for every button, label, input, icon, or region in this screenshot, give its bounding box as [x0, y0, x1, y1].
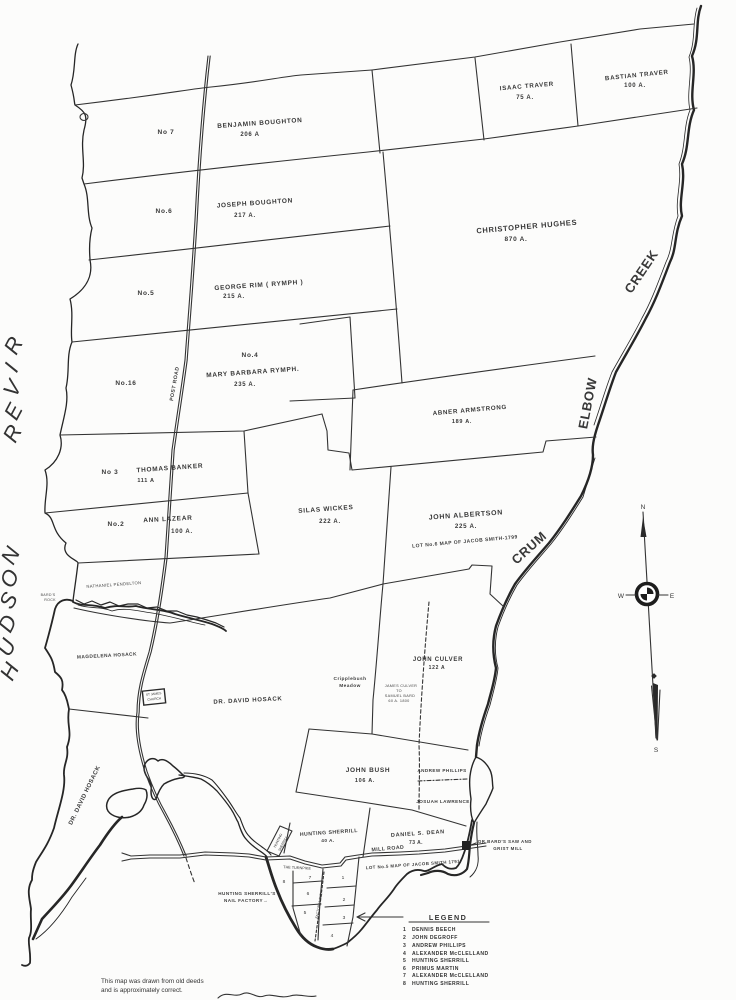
svg-text:2: 2 — [403, 935, 406, 941]
svg-text:7: 7 — [309, 875, 312, 881]
svg-text:7: 7 — [403, 973, 406, 979]
svg-text:ALEXANDER McCLELLAND: ALEXANDER McCLELLAND — [412, 951, 489, 957]
svg-text:No.4: No.4 — [242, 352, 259, 359]
svg-text:Cripplebush: Cripplebush — [334, 676, 367, 682]
svg-text:222 A.: 222 A. — [319, 519, 341, 525]
svg-text:ANDREW PHILLIPS: ANDREW PHILLIPS — [412, 943, 466, 949]
svg-text:DENNIS BEECH: DENNIS BEECH — [412, 927, 456, 933]
svg-text:4: 4 — [331, 933, 334, 939]
svg-text:3: 3 — [343, 915, 346, 921]
svg-text:W: W — [618, 593, 625, 600]
svg-text:No.2: No.2 — [108, 521, 125, 528]
svg-text:No.5: No.5 — [138, 290, 155, 297]
svg-text:870 A.: 870 A. — [504, 236, 527, 243]
svg-text:1: 1 — [342, 875, 345, 881]
svg-text:PRIMUS MARTIN: PRIMUS MARTIN — [412, 966, 459, 972]
svg-text:No.6: No.6 — [156, 208, 173, 215]
svg-text:JOHN DEGROFF: JOHN DEGROFF — [412, 935, 458, 941]
svg-text:Meadow: Meadow — [339, 683, 361, 689]
svg-text:75 A.: 75 A. — [516, 95, 534, 101]
svg-text:1: 1 — [403, 927, 406, 933]
svg-text:5: 5 — [403, 958, 406, 964]
svg-text:2: 2 — [343, 897, 346, 903]
svg-text:S: S — [654, 747, 659, 754]
svg-text:HUNTING SHERRILL'S: HUNTING SHERRILL'S — [218, 891, 275, 896]
svg-text:BARD'S: BARD'S — [41, 593, 56, 597]
svg-text:GRIST MILL: GRIST MILL — [493, 846, 522, 851]
svg-text:225 A.: 225 A. — [455, 523, 477, 530]
svg-text:No.16: No.16 — [115, 380, 136, 387]
svg-text:SAMUEL BARD: SAMUEL BARD — [385, 694, 415, 698]
svg-text:N: N — [641, 504, 646, 511]
svg-text:217 A.: 217 A. — [234, 213, 256, 219]
svg-text:HUNTING SHERRILL: HUNTING SHERRILL — [412, 958, 469, 964]
svg-text:235 A.: 235 A. — [234, 382, 256, 388]
svg-text:JOHN CULVER: JOHN CULVER — [413, 657, 463, 663]
svg-text:E: E — [670, 593, 675, 600]
svg-text:8: 8 — [403, 981, 406, 987]
svg-text:and is approximately correct.: and is approximately correct. — [101, 987, 183, 994]
svg-text:100 A.: 100 A. — [624, 83, 646, 89]
svg-text:6: 6 — [403, 966, 406, 972]
svg-text:DR BARD'S SAW AND: DR BARD'S SAW AND — [478, 839, 532, 844]
svg-text:73 A.: 73 A. — [409, 840, 423, 846]
svg-text:5: 5 — [304, 910, 307, 916]
svg-text:215 A.: 215 A. — [223, 294, 245, 300]
svg-text:122 A: 122 A — [429, 665, 446, 671]
svg-text:ALEXANDER McCLELLAND: ALEXANDER McCLELLAND — [412, 973, 489, 979]
svg-text:HUNTING SHERRILL: HUNTING SHERRILL — [412, 981, 469, 987]
svg-text:100 A.: 100 A. — [171, 529, 193, 535]
svg-text:ROCK: ROCK — [44, 598, 56, 602]
svg-text:NAIL FACTORY→: NAIL FACTORY→ — [224, 898, 268, 903]
svg-text:3: 3 — [403, 943, 406, 949]
svg-text:40 A.: 40 A. — [321, 838, 335, 844]
svg-text:No 3: No 3 — [102, 469, 119, 476]
svg-text:No 7: No 7 — [158, 129, 175, 136]
svg-text:TO: TO — [396, 689, 402, 693]
svg-text:JOSUAH LAWRENCE: JOSUAH LAWRENCE — [416, 799, 469, 804]
svg-text:106 A.: 106 A. — [355, 778, 375, 784]
svg-text:8: 8 — [283, 879, 286, 885]
svg-text:This map was drawn from old de: This map was drawn from old deeds — [101, 978, 204, 985]
svg-text:6: 6 — [307, 891, 310, 897]
svg-text:111 A: 111 A — [137, 478, 154, 484]
svg-text:ANDREW PHILLIPS: ANDREW PHILLIPS — [417, 768, 466, 773]
svg-text:JOHN BUSH: JOHN BUSH — [346, 767, 391, 774]
svg-text:189 A.: 189 A. — [452, 419, 472, 425]
svg-text:JAMES CULVER: JAMES CULVER — [385, 684, 417, 688]
svg-text:206 A: 206 A — [240, 132, 259, 138]
svg-text:LEGEND: LEGEND — [429, 913, 467, 922]
svg-text:60 A. 1800: 60 A. 1800 — [388, 699, 409, 703]
svg-text:4: 4 — [403, 951, 406, 957]
